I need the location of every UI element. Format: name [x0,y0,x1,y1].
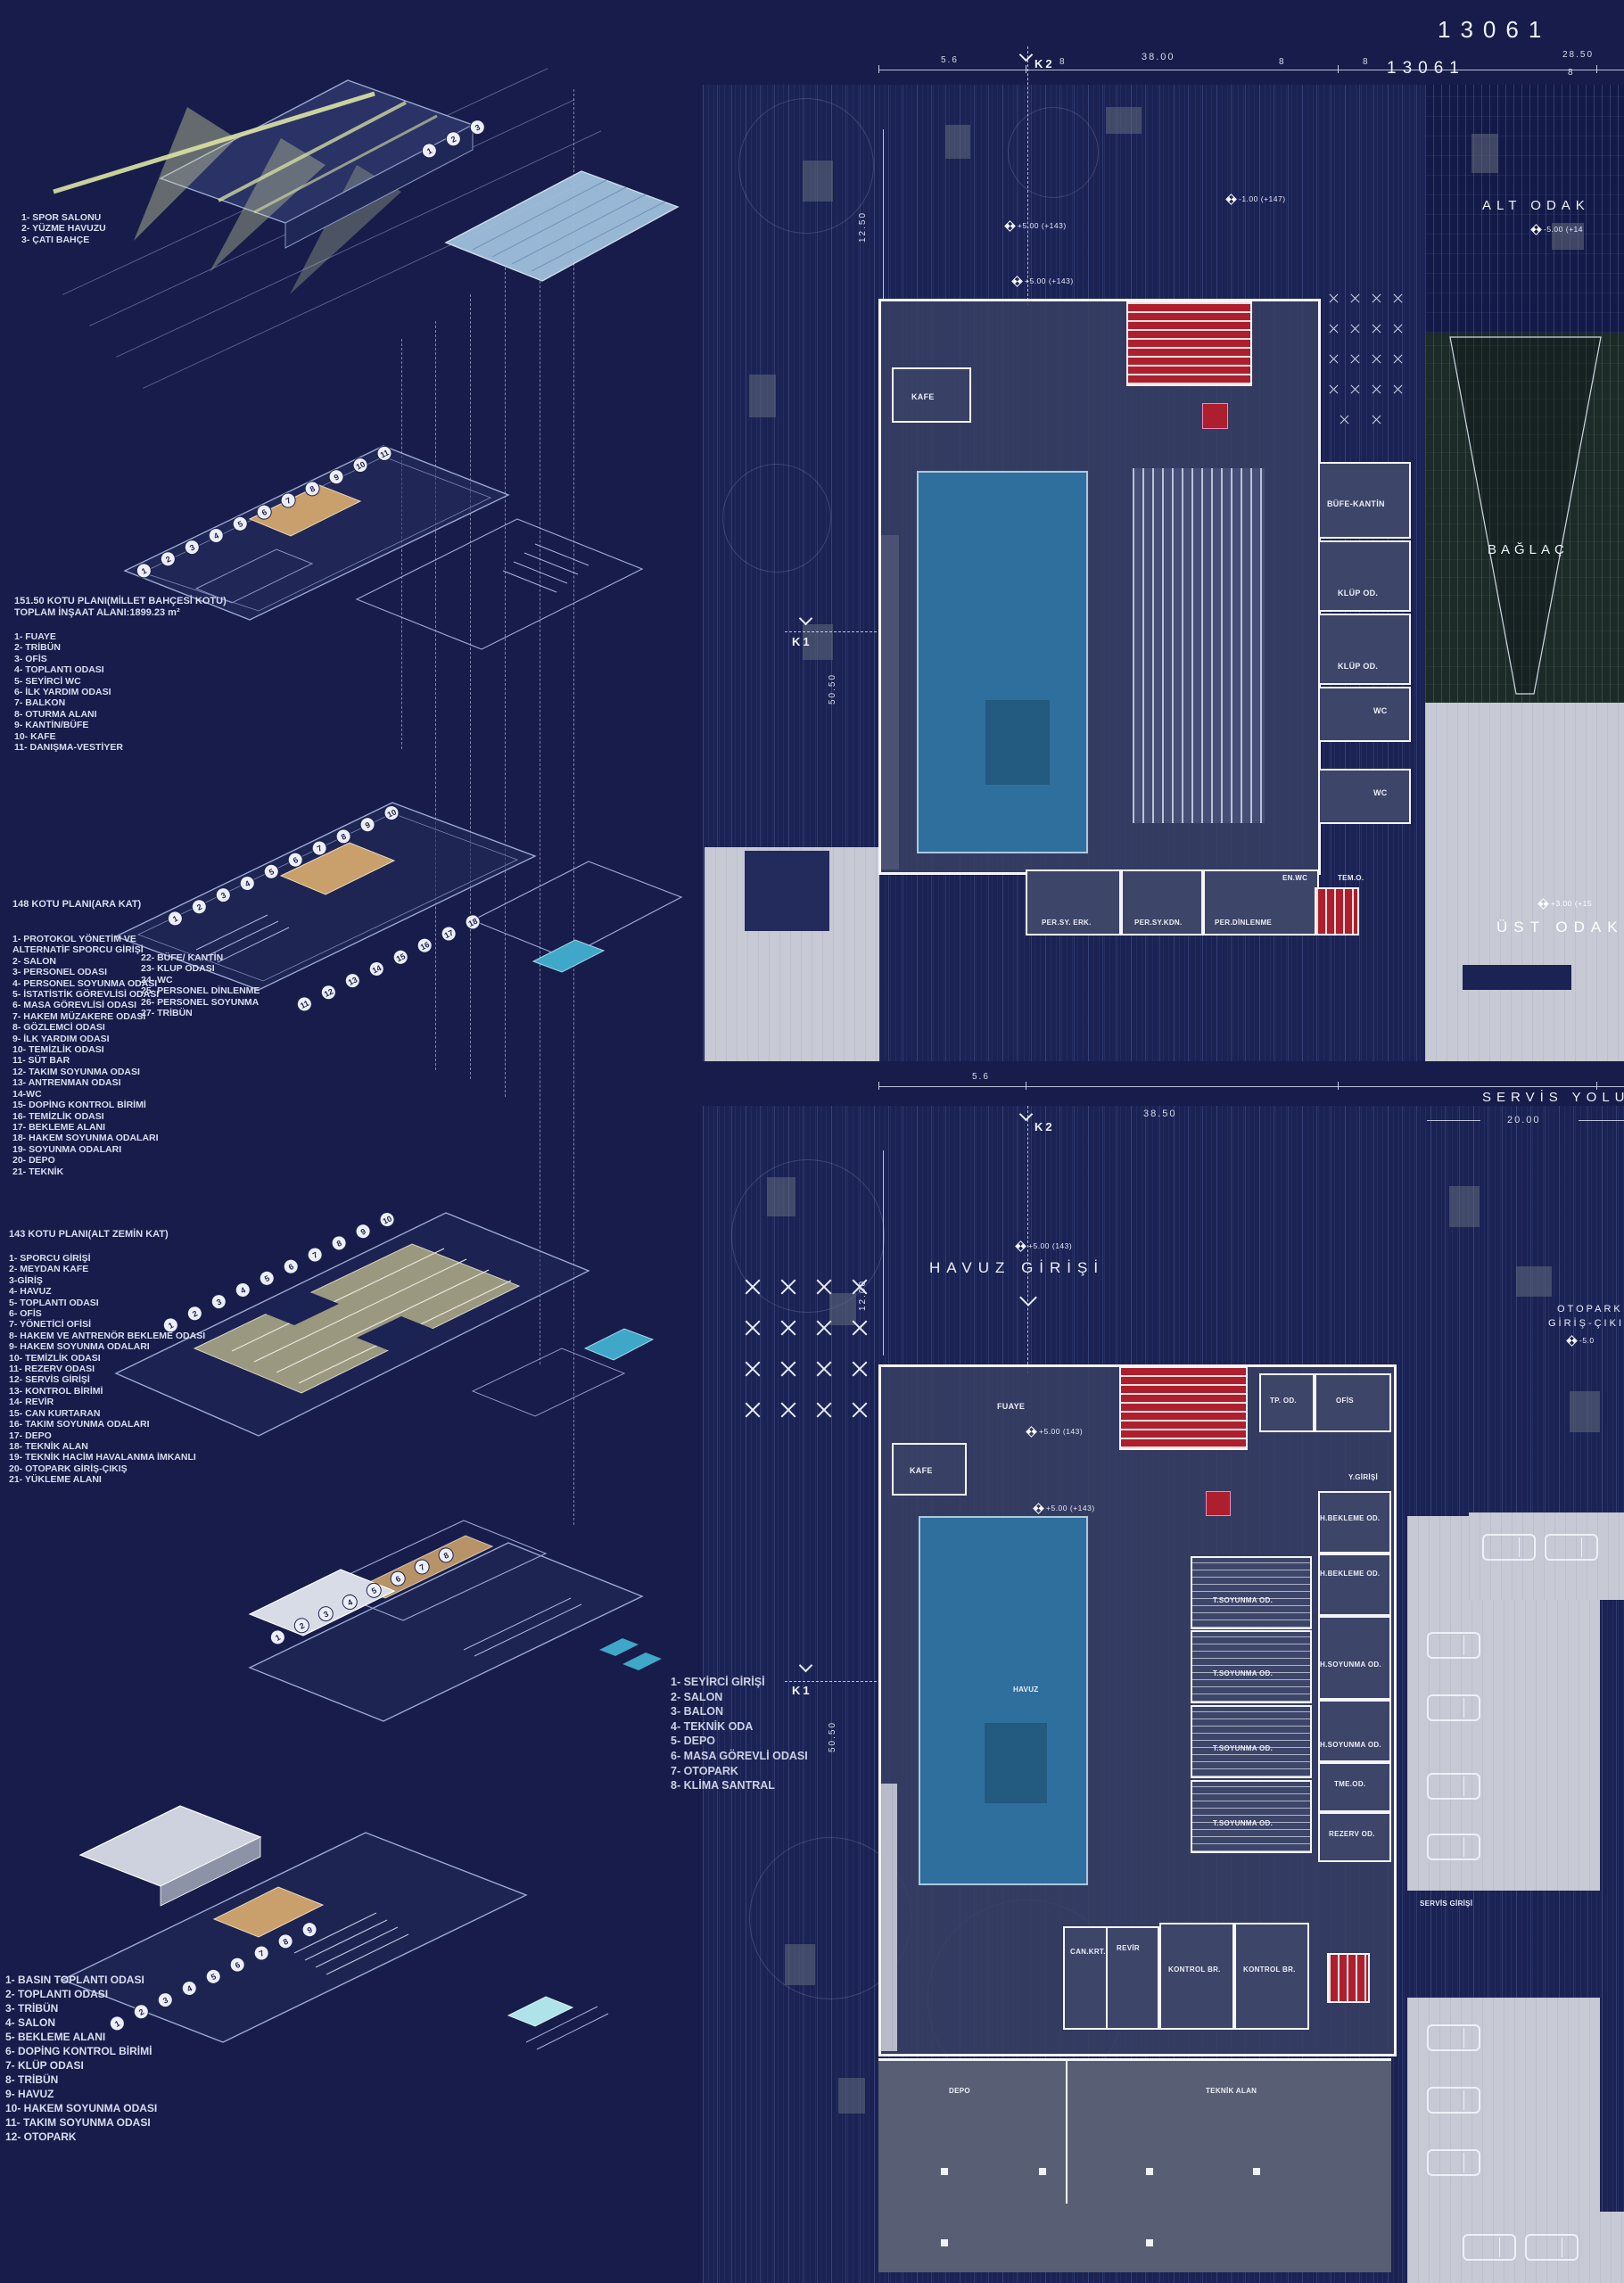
survey-diamond-icon [1026,1426,1037,1438]
column-symbol [941,2239,948,2246]
table-icon [1391,293,1403,304]
table-icon [1348,383,1360,395]
legend-line: 20- DEPO [12,1155,159,1166]
legend-151: 151.50 KOTU PLANI(MİLLET BAHÇESİ KOTU) T… [14,596,227,753]
pool-deep-end [985,700,1050,785]
dim-tick [1596,1082,1597,1090]
level-marker: -1.00 (+147) [1227,194,1286,203]
room-label-ofis: OFİS [1336,1397,1354,1405]
legend-line: 21- TEKNİK [12,1166,159,1177]
tree-icon [742,1277,762,1297]
column-symbol [1253,2168,1260,2175]
room-wc-1 [1318,687,1411,742]
legend-line: 15- CAN KURTARAN [9,1408,205,1419]
survey-diamond-icon [1225,194,1237,205]
room-klup-2 [1318,614,1411,685]
legend-line: 7- OTOPARK [671,1764,808,1779]
survey-diamond-icon [1566,1335,1578,1347]
level-value: -1.00 (+147) [1239,194,1286,203]
tree-grid [742,1277,885,1438]
legend-line: 19- SOYUNMA ODALARI [12,1144,159,1155]
legend-items: 1- SPORCU GİRİŞİ2- MEYDAN KAFE3-GİRİŞ4- … [9,1253,205,1486]
elevator-core-b [1206,1491,1231,1516]
legend-line: 3-GİRİŞ [9,1275,205,1286]
legend-line: 25- PERSONEL DİNLENME [141,985,260,996]
legend-line: 13- ANTRENMAN ODASI [12,1077,159,1088]
table-icon [1370,293,1381,304]
car-icon [1545,1534,1598,1561]
legend-line: 4- TOPLANTI ODASI [14,664,227,675]
dim-line-20b [1579,1120,1624,1121]
legend-line: 1- SPORCU GİRİŞİ [9,1253,205,1264]
tribune-seating [1133,468,1265,823]
dim-tick [1026,1082,1026,1090]
dim-5-6-b: 5.6 [972,1072,990,1082]
survey-diamond-icon [1537,898,1549,910]
legend-line: 10- HAKEM SOYUNMA ODASI [5,2101,157,2115]
baglac-funnel [1434,337,1617,698]
legend-title: 148 KOTU PLANI(ARA KAT) [12,899,159,911]
table-icon [1338,414,1349,425]
legend-line: 9- HAKEM SOYUNMA ODALARI [9,1341,205,1352]
legend-line: 2- TRİBÜN [14,642,227,653]
room-label-hsoy-1: H.SOYUNMA OD. [1320,1661,1381,1669]
level-value: +3.00 (+15 [1551,899,1592,908]
column-symbol [1146,2239,1153,2246]
dim-tick-8: 8 [1059,57,1065,67]
dim-tick [1026,65,1026,73]
axis-k1-label: K1 [792,635,812,648]
tree-icon [778,1359,797,1379]
legend-148-col2: 22- BÜFE/ KANTİN23- KLUP ODASI24- WC25- … [141,952,260,1018]
room-label-bufe: BÜFE-KANTİN [1327,499,1385,508]
dimension-line-bottom-plan [878,1086,1624,1087]
car-icon [1427,1632,1480,1659]
dim-5-6: 5.6 [941,55,959,65]
column-symbol [1039,2168,1046,2175]
wall-band-bottom [881,1784,897,2051]
room-klup-1 [1318,540,1411,612]
room-label-hbek-1: H.BEKLEME OD. [1320,1514,1380,1522]
tree-icon [742,1318,762,1338]
legend-line: 2- SALON [671,1690,808,1705]
legend-line: 5- SEYİRCİ WC [14,676,227,687]
survey-diamond-icon [1033,1503,1044,1514]
cafeteria-tables [1327,293,1407,440]
otopark-giris-label-2: GİRİŞ-ÇIKIŞ [1548,1318,1624,1329]
car-icon [1525,2234,1579,2261]
dim-tick-8: 8 [1363,57,1368,67]
ust-odak-zone [1425,703,1624,1061]
car-icon [1427,2087,1480,2114]
dimension-line-top [878,70,1624,70]
legend-line: 15- DOPİNG KONTROL BİRİMİ [12,1100,159,1110]
tree-icon [742,1359,762,1379]
dimension-line-left [883,129,884,299]
legend-line: 2- MEYDAN KAFE [9,1264,205,1274]
site-circle [1008,107,1099,198]
tree-icon [778,1318,797,1338]
legend-title-2: TOPLAM İNŞAAT ALANI:1899.23 m² [14,607,227,619]
room-label-cankrt: CAN.KRT. [1070,1948,1106,1956]
site-block [838,2078,865,2114]
spacer [12,911,159,934]
legend-line: 16- TEMİZLİK ODASI [12,1111,159,1122]
dim-38-50: 38.50 [1143,1109,1177,1119]
room-label-tsoy-2: T.SOYUNMA OD. [1213,1669,1273,1677]
car-icon [1427,2024,1480,2051]
table-icon [1348,323,1360,334]
legend-line: 3- BALON [671,1704,808,1719]
site-block [1449,1186,1480,1227]
column-symbol [1146,2168,1153,2175]
tree-icon [813,1400,833,1420]
tree-icon [849,1400,869,1420]
table-icon [1327,383,1339,395]
table-icon [1370,353,1381,365]
car-icon [1427,1694,1480,1721]
legend-line: 8- TRİBÜN [5,2073,157,2087]
room-label-per-kdn: PER.SY.KDN. [1134,919,1183,927]
level-value: +5.00 (+143) [1025,276,1074,285]
legend-line: 3- TRİBÜN [5,2001,157,2015]
legend-line: 6- İLK YARDIM ODASI [14,687,227,697]
wall [1066,2061,1068,2204]
room-label-rezerv: REZERV OD. [1329,1830,1375,1838]
legend-section: 1- SEYİRCİ GİRİŞİ2- SALON3- BALON4- TEKN… [671,1675,808,1793]
room-kontrol-2 [1234,1923,1309,2030]
legend-line: 3- OFİS [14,654,227,664]
tree-icon [778,1277,797,1297]
tree-icon [849,1277,869,1297]
servis-girisi-label: SERVİS GİRİŞİ [1420,1900,1472,1908]
room-label-tp-od: TP. OD. [1270,1397,1297,1405]
legend-line: 23- KLUP ODASI [141,963,260,974]
legend-line: 16- TAKIM SOYUNMA ODALARI [9,1419,205,1430]
dim-tick [878,65,879,73]
room-label-kontrol-1: KONTROL BR. [1168,1966,1221,1974]
room-label-y-girisi: Y.GİRİŞİ [1348,1473,1378,1481]
survey-diamond-icon [1015,1240,1026,1252]
site-block [767,1177,796,1216]
tree-icon [778,1400,797,1420]
axis-k1-line [785,631,881,632]
room-label-per-dinlenme: PER.DİNLENME [1215,919,1272,927]
level-marker-entrance: +5.00 (143) [1017,1241,1072,1250]
stair-block-b2 [1327,1953,1370,2003]
legend-line: 8- OTURMA ALANI [14,709,227,720]
legend-line: 14- REVİR [9,1397,205,1407]
table-icon [1391,353,1403,365]
level-marker: +5.00 (143) [1027,1427,1083,1436]
legend-line: 3- PERSONEL ODASI [12,967,159,977]
tree-icon [849,1318,869,1338]
legend-line: 10- TEMİZLİK ODASI [9,1353,205,1364]
survey-diamond-icon [1011,276,1023,287]
level-marker: +5.00 (+143) [1035,1504,1095,1512]
site-block [749,375,776,417]
stair-block-small [1315,887,1359,935]
legend-line: 5- TOPLANTI ODASI [9,1298,205,1308]
legend-line: ALTERNATİF SPORCU GİRİŞİ [12,944,159,955]
legend-line: 17- BEKLEME ALANI [12,1122,159,1133]
legend-143: 143 KOTU PLANI(ALT ZEMİN KAT) 1- SPORCU … [9,1229,205,1486]
legend-line: 8- GÖZLEMCİ ODASI [12,1022,159,1033]
dim-tick [1338,1082,1339,1090]
axis-k2-line-b [1027,1106,1028,1373]
table-icon [1348,353,1360,365]
legend-line: 11- REZERV ODASI [9,1364,205,1374]
car-icon [1427,1834,1480,1860]
car-icon [1482,1534,1536,1561]
room-label-wc-1: WC [1373,706,1388,715]
dim-50-50: 50.50 [828,673,837,705]
legend-line: 4- PERSONEL SOYUNMA ODASI [12,978,159,989]
zone-ust-odak: ÜST ODAK [1496,919,1624,936]
legend-basement: 1- BASIN TOPLANTI ODASI2- TOPLANTI ODASI… [5,1973,157,2144]
otopark-giris-label-1: OTOPARK [1557,1304,1623,1315]
legend-line: 10- KAFE [14,731,227,742]
zone-alt-odak: ALT ODAK [1482,198,1590,213]
legend-line: 21- YÜKLEME ALANI [9,1474,205,1485]
site-block [1106,107,1142,134]
legend-line: 1- SEYİRCİ GİRİŞİ [671,1675,808,1690]
legend-line: 4- SALON [5,2015,157,2030]
legend-line: 12- SERVİS GİRİŞİ [9,1374,205,1385]
tree-icon [742,1400,762,1420]
spacer [14,619,227,631]
competition-number-small: 13061 [1387,59,1465,78]
legend-line: 22- BÜFE/ KANTİN [141,952,260,963]
table-icon [1391,323,1403,334]
room-hsoyunma-1 [1318,1616,1391,1700]
legend-line: 18- TEKNİK ALAN [9,1441,205,1452]
table-icon [1370,414,1381,425]
tree-icon [813,1277,833,1297]
dim-tick [1338,65,1339,73]
legend-line: 4- TEKNİK ODA [671,1719,808,1735]
legend-title: 143 KOTU PLANI(ALT ZEMİN KAT) [9,1229,205,1240]
room-revir [1106,1926,1159,2030]
legend-line: 12- TAKIM SOYUNMA ODASI [12,1067,159,1077]
legend-line: 14-WC [12,1089,159,1100]
room-label-klup-2: KLÜP OD. [1338,662,1378,671]
site-block [803,161,833,202]
legend-line: 11- SÜT BAR [12,1055,159,1066]
level-value: +5.00 (143) [1028,1241,1072,1250]
survey-diamond-icon [1004,220,1016,232]
legend-line: 3- ÇATI BAHÇE [21,235,106,245]
legend-line: 2- YÜZME HAVUZU [21,223,106,234]
table-icon [1327,353,1339,365]
dim-28-50: 28.50 [1562,50,1594,60]
room-label-kafe: KAFE [911,392,935,401]
axon-roof [54,54,678,375]
legend-title: 151.50 KOTU PLANI(MİLLET BAHÇESİ KOTU) [14,596,227,607]
room-label-kafe-b: KAFE [910,1466,933,1475]
site-circle [722,464,831,573]
swimming-pool-bottom [919,1516,1088,1885]
legend-line: 6- DOPİNG KONTROL BİRİMİ [5,2044,157,2058]
level-marker: +5.00 (+143) [1006,221,1067,230]
survey-diamond-icon [1530,224,1542,235]
level-marker-otopark: -5.0 [1568,1336,1595,1345]
room-kontrol-1 [1159,1923,1234,2030]
legend-line: 9- HAVUZ [5,2087,157,2101]
room-tsoyunma-3 [1191,1705,1312,1778]
legend-line: 13- KONTROL BİRİMİ [9,1386,205,1397]
room-label-tem-o: TEM.O. [1338,874,1364,882]
legend-line: 5- İSTATİSTİK GÖREVLİSİ ODASI [12,989,159,1000]
car-icon [1427,1773,1480,1800]
room-label-fuaye: FUAYE [997,1402,1025,1411]
room-label-tsoy-3: T.SOYUNMA OD. [1213,1744,1273,1752]
legend-line: 11- DANIŞMA-VESTİYER [14,742,227,753]
level-value: -5.00 (+14 [1544,225,1583,234]
legend-line: 24- WC [141,975,260,985]
room-hbekleme-2 [1318,1554,1391,1616]
room-label-hsoy-2: H.SOYUNMA OD. [1320,1741,1381,1749]
legend-line: 18- HAKEM SOYUNMA ODALARI [12,1133,159,1143]
legend-line: 2- SALON [12,956,159,967]
level-marker: +5.00 (+143) [1013,276,1074,285]
table-icon [1348,293,1360,304]
table-icon [1327,293,1339,304]
site-block [1471,134,1498,173]
room-label-klup-1: KLÜP OD. [1338,589,1378,598]
site-block [785,1944,815,1985]
stair-block [1126,301,1252,386]
site-block [1516,1266,1552,1297]
dim-line-20 [1427,1120,1480,1121]
room-label-tme: TME.OD. [1334,1780,1365,1788]
legend-line: 6- MASA GÖREVLİSİ ODASI [12,1000,159,1010]
level-marker-alt: -5.00 (+14 [1532,225,1583,234]
dim-50-50-b: 50.50 [828,1721,837,1752]
plaza-dark-block [745,851,829,931]
legend-line: 7- HAKEM MÜZAKERE ODASI [12,1011,159,1022]
level-value: +5.00 (143) [1039,1427,1083,1436]
legend-line: 1- FUAYE [14,631,227,642]
dim-tick-8: 8 [1279,57,1284,67]
legend-line: 5- DEPO [671,1734,808,1749]
tree-icon [813,1318,833,1338]
room-label-tsoy-1: T.SOYUNMA OD. [1213,1596,1273,1604]
legend-line: 12- OTOPARK [5,2130,157,2144]
room-label-per-erk: PER.SY. ERK. [1042,919,1092,927]
legend-line: 10- TEMİZLİK ODASI [12,1044,159,1055]
legend-items: 1- FUAYE2- TRİBÜN3- OFİS4- TOPLANTI ODAS… [14,631,227,753]
legend-line: 11- TAKIM SOYUNMA ODASI [5,2115,157,2130]
havuz-girisi-title: HAVUZ GİRİŞİ [929,1259,1104,1277]
level-value: +5.00 (+143) [1018,221,1067,230]
dim-tick [878,1082,879,1090]
legend-148: 148 KOTU PLANI(ARA KAT) 1- PROTOKOL YÖNE… [12,899,159,1177]
room-hsoyunma-2 [1318,1700,1391,1762]
legend-line: 19- TEKNİK HACİM HAVALANMA İMKANLI [9,1452,205,1463]
dim-38-00: 38.00 [1142,52,1175,62]
servis-yolu-label: SERVİS YOLU [1482,1090,1624,1105]
car-icon [1463,2234,1516,2261]
legend-line: 7- YÖNETİCİ OFİSİ [9,1319,205,1330]
pool-deep-end [985,1723,1047,1803]
table-icon [1370,383,1381,395]
room-label-wc-2: WC [1373,788,1388,797]
legend-line: 2- TOPLANTI ODASI [5,1987,157,2001]
room-label-kontrol-2: KONTROL BR. [1243,1966,1296,1974]
elevator-core [1202,403,1228,429]
legend-line: 1- BASIN TOPLANTI ODASI [5,1973,157,1987]
legend-line: 9- İLK YARDIM ODASI [12,1034,159,1044]
legend-line: 26- PERSONEL SOYUNMA [141,997,260,1008]
level-value: +5.00 (+143) [1046,1504,1095,1512]
site-block [945,125,970,159]
legend-line: 6- MASA GÖREVLİ ODASI [671,1749,808,1764]
level-value: -5.0 [1579,1336,1595,1345]
site-block [1570,1391,1600,1432]
legend-line: 20- OTOPARK GİRİŞ-ÇIKIŞ [9,1463,205,1474]
room-hbekleme-1 [1318,1491,1391,1554]
room-tsoyunma-1 [1191,1556,1312,1629]
legend-line: 5- BEKLEME ALANI [5,2030,157,2044]
legend-line: 27- TRİBÜN [141,1008,260,1018]
legend-line: 8- KLİMA SANTRAL [671,1778,808,1793]
legend-line: 7- BALKON [14,697,227,708]
room-label-depo: DEPO [949,2087,970,2095]
room-tsoyunma-4 [1191,1780,1312,1853]
table-icon [1370,323,1381,334]
level-marker-ust: +3.00 (+15 [1539,899,1592,908]
swimming-pool-top [917,471,1088,853]
tree-icon [849,1359,869,1379]
dim-12-50: 12.50 [858,211,868,243]
zone-baglac: BAĞLAÇ [1488,542,1569,557]
k2-arrow-icon [1019,48,1034,62]
legend-line: 4- HAVUZ [9,1286,205,1297]
legend-line: 6- OFİS [9,1308,205,1319]
room-label-revir: REVİR [1117,1944,1140,1952]
competition-number-large: 13061 [1438,16,1551,44]
legend-line: 7- KLÜP ODASI [5,2058,157,2073]
room-tsoyunma-2 [1191,1630,1312,1703]
legend-line: 1- PROTOKOL YÖNETİM VE [12,934,159,944]
room-label-havuz: HAVUZ [1013,1685,1038,1694]
legend-line: 8- HAKEM VE ANTRENÖR BEKLEME ODASI [9,1331,205,1341]
legend-items-col1: 1- PROTOKOL YÖNETİM VEALTERNATİF SPORCU … [12,934,159,1177]
legend-line: 9- KANTİN/BÜFE [14,720,227,730]
legend-line: 1- SPOR SALONU [21,212,106,223]
stair-block-b [1119,1366,1248,1450]
room-label-tsoy-4: T.SOYUNMA OD. [1213,1819,1273,1827]
legend-line: 17- DEPO [9,1430,205,1441]
room-label-en-wc: EN.WC [1282,874,1307,882]
table-icon [1327,323,1339,334]
tree-icon [813,1359,833,1379]
room-label-hbek-2: H.BEKLEME OD. [1320,1570,1380,1578]
table-icon [1391,383,1403,395]
column-symbol [941,2168,948,2175]
ust-odak-dark-bar [1463,965,1571,990]
room-wc-2 [1318,769,1411,824]
dim-20-00: 20.00 [1507,1115,1541,1125]
legend-roof: 1- SPOR SALONU2- YÜZME HAVUZU3- ÇATI BAH… [21,212,106,245]
spacer [9,1240,205,1253]
axis-k2-label: K2 [1035,57,1055,70]
room-label-teknik: TEKNİK ALAN [1206,2087,1257,2095]
dim-tick [1596,65,1597,73]
axis-k2-line [1027,46,1028,305]
competition-board: 13061 13061 28.50 8 5.6 38.00 888 K2 12.… [0,0,1624,2283]
